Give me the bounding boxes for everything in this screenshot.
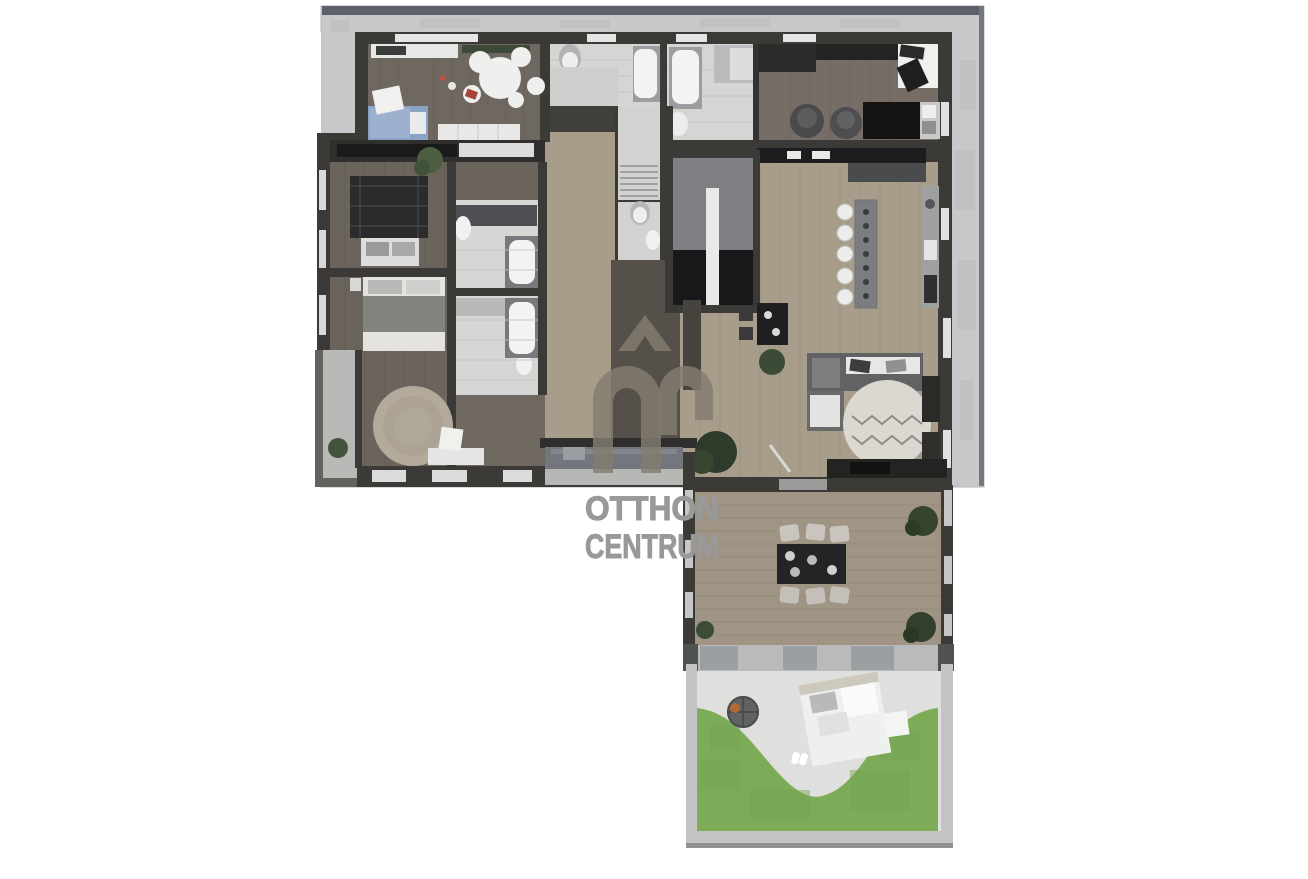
svg-text:CENTRUM: CENTRUM <box>585 528 719 566</box>
svg-text:OTTHON: OTTHON <box>585 490 719 528</box>
